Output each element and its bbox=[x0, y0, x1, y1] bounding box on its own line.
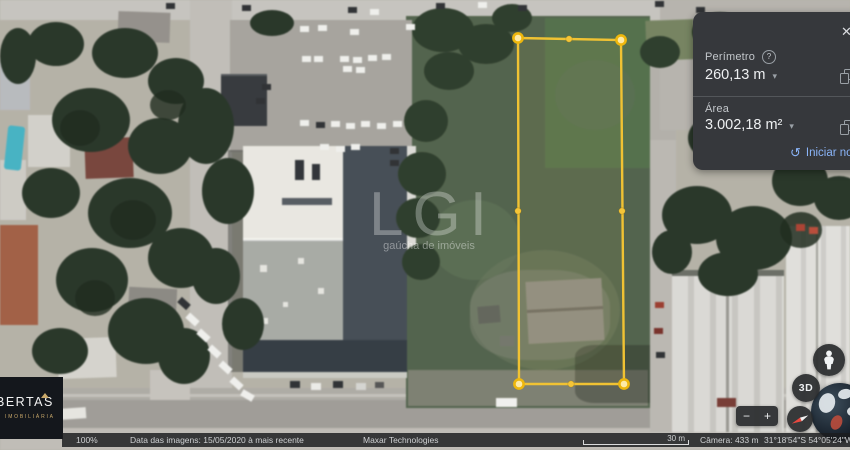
zoom-control: − + bbox=[736, 406, 778, 426]
polygon-handle-mid[interactable] bbox=[566, 36, 572, 42]
polygon-handle-corner[interactable] bbox=[514, 379, 523, 388]
compass-icon bbox=[789, 408, 811, 430]
polygon-handle-mid[interactable] bbox=[515, 208, 521, 214]
measure-panel: ✕ Perímetro ? 260,13 m ▾ Área 3.002,18 m… bbox=[693, 12, 850, 170]
coordinates: 31°18'54"S 54°05'24"W bbox=[764, 433, 850, 447]
copy-icon[interactable] bbox=[840, 69, 850, 84]
zoom-level: 100% bbox=[76, 433, 98, 447]
polygon-handle-corner[interactable] bbox=[513, 33, 522, 42]
scale-bar: 30 m bbox=[583, 433, 695, 447]
camera-altitude: Câmera: 433 m bbox=[700, 433, 759, 447]
polygon-handle-corner[interactable] bbox=[619, 379, 628, 388]
status-bar: 100% Data das imagens: 15/05/2020 à mais… bbox=[62, 433, 850, 447]
restart-label: Iniciar novo bbox=[806, 147, 850, 159]
measurement-polygon[interactable] bbox=[518, 38, 624, 384]
chevron-down-icon[interactable]: ▾ bbox=[789, 121, 794, 132]
pegman-icon bbox=[822, 350, 836, 370]
close-icon[interactable]: ✕ bbox=[841, 24, 850, 40]
chevron-down-icon[interactable]: ▾ bbox=[772, 71, 777, 82]
imagery-date: Data das imagens: 15/05/2020 à mais rece… bbox=[130, 433, 304, 447]
3d-mode-button[interactable]: 3D bbox=[792, 374, 820, 402]
perimeter-value: 260,13 m bbox=[705, 67, 765, 83]
area-value-row: 3.002,18 m² ▾ bbox=[705, 117, 794, 133]
pegman-button[interactable] bbox=[813, 344, 845, 376]
polygon-handle-corner[interactable] bbox=[616, 35, 625, 44]
3d-label: 3D bbox=[799, 382, 813, 394]
zoom-out-button[interactable]: − bbox=[736, 409, 757, 423]
realestate-logo: BERTAS IMOBILIÁRIA bbox=[0, 377, 63, 439]
area-label-row: Área bbox=[705, 103, 729, 115]
perimeter-label: Perímetro bbox=[705, 51, 755, 63]
restart-measure-button[interactable]: ↺ Iniciar novo bbox=[790, 145, 850, 161]
help-icon[interactable]: ? bbox=[762, 50, 776, 64]
compass-button[interactable] bbox=[787, 406, 813, 432]
restart-icon: ↺ bbox=[790, 145, 801, 161]
logo-accent-triangle bbox=[41, 393, 49, 398]
scale-label: 30 m bbox=[667, 432, 685, 446]
area-label: Área bbox=[705, 103, 729, 115]
zoom-in-button[interactable]: + bbox=[757, 409, 778, 423]
area-value: 3.002,18 m² bbox=[705, 117, 782, 133]
copy-icon[interactable] bbox=[840, 120, 850, 135]
logo-subtitle: IMOBILIÁRIA bbox=[5, 414, 55, 420]
polygon-handle-mid[interactable] bbox=[619, 208, 625, 214]
polygon-handle-mid[interactable] bbox=[568, 381, 574, 387]
perimeter-label-row: Perímetro ? bbox=[705, 50, 776, 64]
panel-divider bbox=[693, 96, 850, 97]
perimeter-value-row: 260,13 m ▾ bbox=[705, 67, 777, 83]
google-earth-app: LGI gaúcha de imóveis ✕ Perímetro ? 260,… bbox=[0, 0, 850, 450]
imagery-provider: Maxar Technologies bbox=[363, 433, 438, 447]
